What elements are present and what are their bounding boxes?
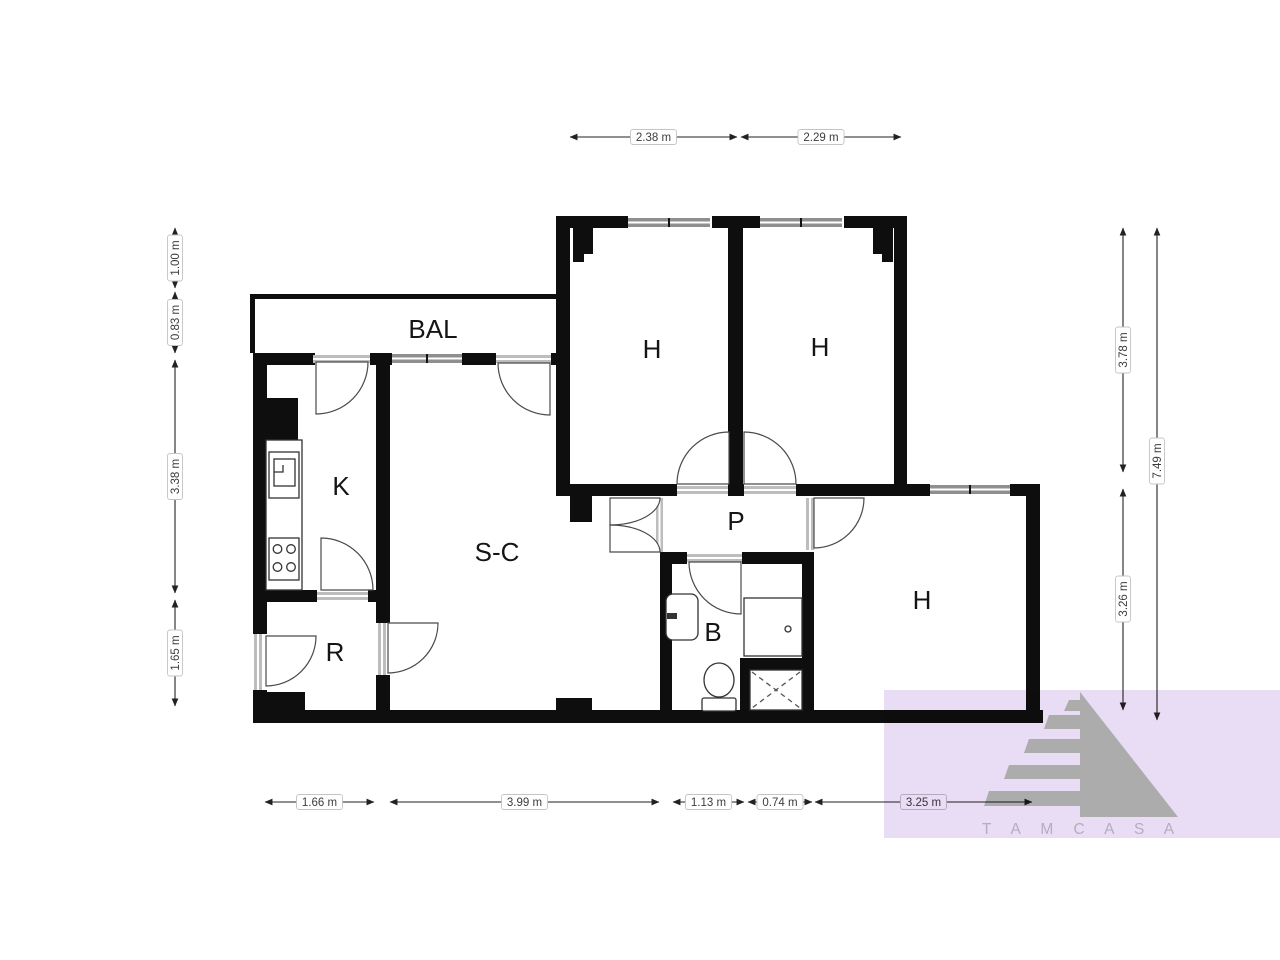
door-arc — [610, 525, 660, 552]
room-label-h1: H — [643, 334, 662, 364]
floor-plan-screenshot: BAL H H K S-C P B R H 2.38 m 2.29 m 1.00… — [0, 0, 1280, 960]
room-label-r: R — [326, 637, 345, 667]
svg-text:0.74 m: 0.74 m — [762, 797, 797, 809]
svg-text:3.26 m: 3.26 m — [1118, 581, 1130, 616]
kitchen-sink-icon — [269, 452, 299, 498]
room-label-h2: H — [811, 332, 830, 362]
room-label-p: P — [727, 506, 744, 536]
shower-icon — [744, 598, 802, 656]
walls — [250, 216, 1043, 723]
svg-text:3.78 m: 3.78 m — [1118, 332, 1130, 367]
svg-text:3.38 m: 3.38 m — [170, 459, 182, 494]
door-band — [496, 355, 551, 363]
svg-text:7.49 m: 7.49 m — [1152, 443, 1164, 478]
toilet-icon — [702, 663, 736, 711]
dim-bottom-0: 1.66 m — [265, 795, 374, 810]
dim-right-1: 3.26 m — [1116, 489, 1131, 710]
room-label-k: K — [332, 471, 350, 501]
window — [392, 354, 462, 363]
window — [628, 218, 710, 227]
dim-bottom-2: 1.13 m — [673, 795, 744, 810]
door-arc — [316, 362, 368, 414]
dim-bottom-1: 3.99 m — [390, 795, 659, 810]
dim-bottom-3: 0.74 m — [748, 795, 812, 810]
watermark-brand: T A M C A S A — [982, 821, 1182, 838]
door-arc — [266, 636, 316, 686]
door-arc — [677, 432, 729, 484]
dim-left-0: 1.00 m — [168, 228, 183, 288]
svg-text:1.65 m: 1.65 m — [170, 635, 182, 670]
room-label-sc: S-C — [475, 537, 520, 567]
door-arc — [610, 498, 660, 525]
svg-text:1.00 m: 1.00 m — [170, 240, 182, 275]
svg-text:3.99 m: 3.99 m — [507, 797, 542, 809]
window — [760, 218, 842, 227]
door-band — [254, 634, 262, 690]
room-label-bal: BAL — [408, 314, 457, 344]
room-label-b: B — [704, 617, 721, 647]
svg-text:1.66 m: 1.66 m — [302, 797, 337, 809]
door-band — [687, 554, 742, 562]
door-band — [378, 623, 386, 675]
dim-left-1: 0.83 m — [168, 292, 183, 353]
dim-top-1: 2.29 m — [741, 130, 901, 145]
dim-left-3: 1.65 m — [168, 600, 183, 706]
svg-text:2.38 m: 2.38 m — [636, 132, 671, 144]
floor-plan-svg: BAL H H K S-C P B R H 2.38 m 2.29 m 1.00… — [0, 0, 1280, 960]
dim-top-0: 2.38 m — [570, 130, 737, 145]
door-band — [317, 592, 368, 600]
dim-right-2: 7.49 m — [1150, 228, 1165, 720]
door-band — [677, 486, 728, 494]
room-label-h3: H — [913, 585, 932, 615]
door-band — [806, 498, 814, 550]
svg-text:2.29 m: 2.29 m — [803, 132, 838, 144]
svg-text:0.83 m: 0.83 m — [170, 305, 182, 340]
door-arc — [388, 623, 438, 673]
stove-icon — [269, 538, 299, 580]
window — [930, 485, 1010, 494]
watermark: T A M C A S A — [884, 690, 1280, 838]
dim-left-2: 3.38 m — [168, 360, 183, 593]
door-arc — [321, 538, 373, 590]
door-band — [744, 486, 796, 494]
door-arc — [814, 498, 864, 548]
svg-text:1.13 m: 1.13 m — [691, 797, 726, 809]
door-arc — [744, 432, 796, 484]
dim-right-0: 3.78 m — [1116, 228, 1131, 472]
bathroom-sink-icon — [666, 594, 698, 640]
shaft-icon — [750, 670, 802, 710]
door-arc — [498, 363, 550, 415]
